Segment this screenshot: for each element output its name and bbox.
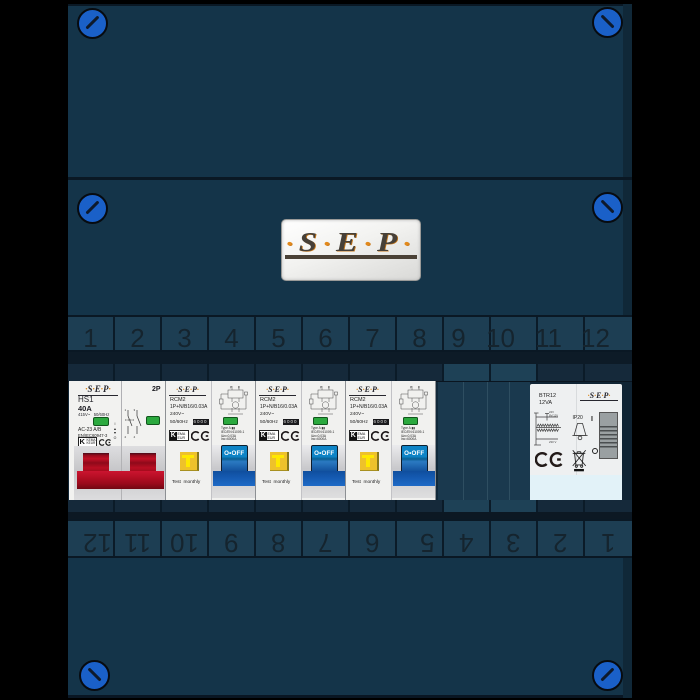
svg-text:230 V: 230 V xyxy=(549,440,556,444)
svg-text:4: 4 xyxy=(134,435,136,439)
svg-text:F: F xyxy=(328,386,330,390)
svg-text:F: F xyxy=(238,386,240,390)
svg-text:8V/12V: 8V/12V xyxy=(549,413,558,417)
svg-text:P: P xyxy=(320,386,322,390)
svg-text:3: 3 xyxy=(134,408,136,412)
svg-text:P: P xyxy=(230,386,232,390)
svg-text:P: P xyxy=(410,386,412,390)
svg-text:2: 2 xyxy=(125,435,127,439)
svg-text:1: 1 xyxy=(125,408,127,412)
svg-text:F: F xyxy=(418,386,420,390)
